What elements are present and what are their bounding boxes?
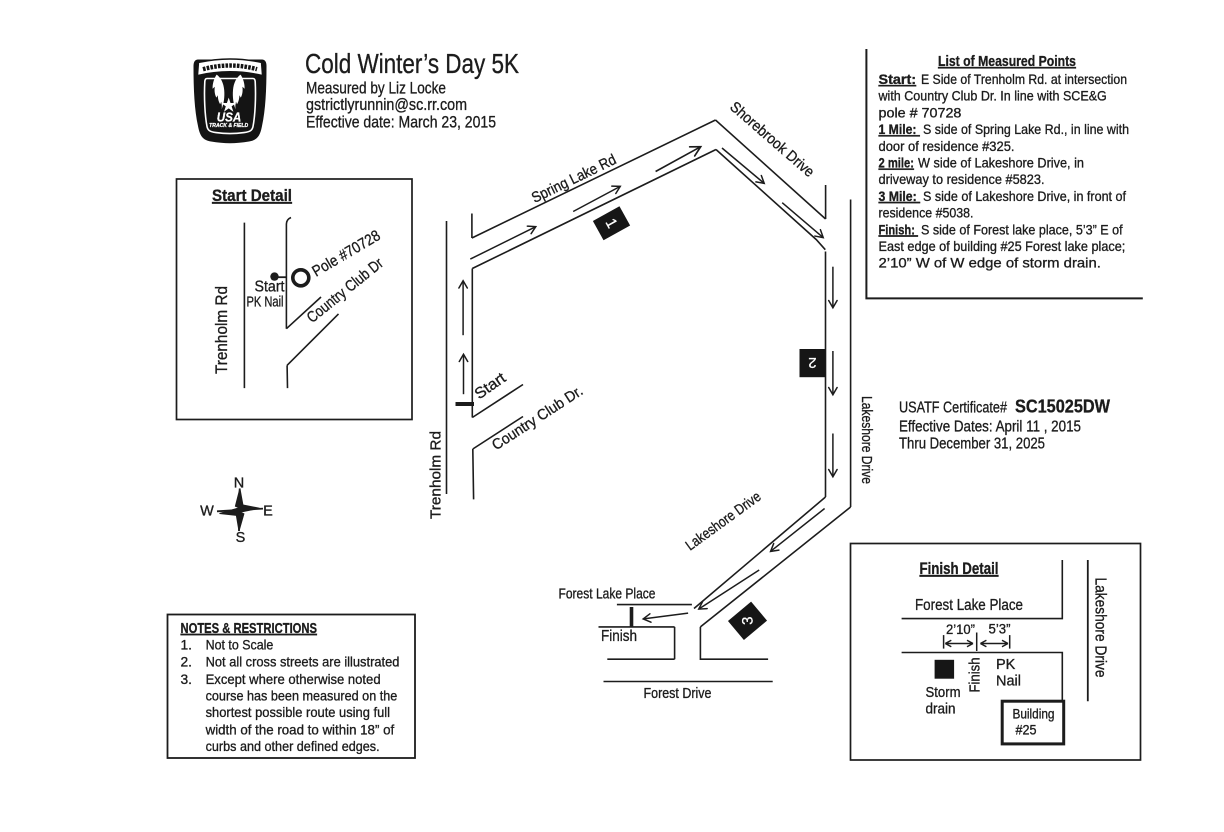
svg-text:W side of Lakeshore Drive, in: W side of Lakeshore Drive, in [918,156,1084,171]
svg-text:1.: 1. [181,638,193,653]
svg-text:S side of Lakeshore Drive, in: S side of Lakeshore Drive, in front of [923,189,1126,204]
svg-text:door of residence #325.: door of residence #325. [879,139,1015,154]
svg-text:5’3”: 5’3” [989,622,1011,637]
svg-text:S: S [236,530,246,546]
svg-text:1 Mile:: 1 Mile: [879,122,920,137]
svg-text:shortest possible route using: shortest possible route using full [206,705,390,720]
svg-text:2’10” W of W edge of storm dra: 2’10” W of W edge of storm drain. [879,256,1101,271]
svg-text:driveway to residence #5823.: driveway to residence #5823. [879,172,1045,187]
svg-text:N: N [234,476,244,492]
svg-text:3: 3 [739,616,756,625]
svg-text:course has been measured on th: course has been measured on the [206,689,398,704]
svg-text:Cold Winter’s Day 5K: Cold Winter’s Day 5K [305,48,520,79]
svg-text:Thru December 31, 2025: Thru December 31, 2025 [899,436,1045,453]
svg-text:Effective Dates: April 11 , 20: Effective Dates: April 11 , 2015 [899,419,1081,436]
svg-text:Forest Lake Place: Forest Lake Place [559,587,656,603]
svg-text:Forest Drive: Forest Drive [644,686,712,702]
svg-text:3 Mile:: 3 Mile: [879,189,921,204]
svg-text:width of the road to within 18: width of the road to within 18” of [205,723,395,738]
svg-text:Finish Detail: Finish Detail [920,560,999,578]
svg-text:Trenholm Rd: Trenholm Rd [213,286,231,374]
svg-text:Not to Scale: Not to Scale [206,638,274,653]
svg-text:2.: 2. [181,655,193,670]
svg-text:TRACK & FIELD: TRACK & FIELD [209,123,248,129]
svg-text:residence #5038.: residence #5038. [879,206,974,221]
svg-text:Finish: Finish [968,658,984,693]
svg-text:3.: 3. [181,672,193,687]
svg-text:Effective date: March 23, 2015: Effective date: March 23, 2015 [306,113,496,132]
svg-text:USATF Certificate#: USATF Certificate# [899,400,1007,417]
svg-text:pole # 70728: pole # 70728 [879,105,962,120]
svg-text:Except where otherwise noted: Except where otherwise noted [206,672,381,687]
svg-text:PK: PK [996,657,1016,673]
svg-text:Lakeshore Drive: Lakeshore Drive [858,396,875,484]
svg-text:S side of Forest lake place, 5: S side of Forest lake place, 5’3” E of [921,222,1123,237]
svg-text:PK Nail: PK Nail [247,295,284,311]
svg-text:List of Measured Points: List of Measured Points [938,54,1076,70]
svg-text:E: E [263,504,273,520]
svg-text:S side of Spring Lake Rd., in: S side of Spring Lake Rd., in line with [923,122,1129,137]
svg-text:2’10”: 2’10” [946,622,975,637]
svg-text:East edge of building #25 Fore: East edge of building #25 Forest lake pl… [879,239,1126,254]
svg-text:E Side of Trenholm Rd. at inte: E Side of Trenholm Rd. at intersection [921,72,1127,87]
svg-text:Forest Lake Place: Forest Lake Place [915,597,1023,614]
svg-text:Storm: Storm [926,685,961,701]
svg-text:Nail: Nail [996,674,1021,690]
svg-text:2: 2 [808,354,816,371]
svg-text:Trenholm Rd: Trenholm Rd [428,431,445,519]
svg-text:Start: Start [255,279,286,296]
svg-text:Finish: Finish [601,628,637,645]
svg-text:#25: #25 [1016,723,1037,738]
svg-text:Lakeshore Drive: Lakeshore Drive [1092,578,1109,678]
svg-text:Start:: Start: [879,72,917,87]
svg-text:SC15025DW: SC15025DW [1015,396,1110,417]
svg-text:curbs and other defined edges.: curbs and other defined edges. [206,739,380,754]
svg-text:drain: drain [926,702,956,718]
svg-text:Not all cross streets are illu: Not all cross streets are illustrated [206,655,400,670]
svg-text:W: W [200,504,214,520]
svg-text:NOTES & RESTRICTIONS: NOTES & RESTRICTIONS [181,621,318,637]
svg-text:with Country Club Dr. In line: with Country Club Dr. In line with SCE&G [878,89,1107,104]
svg-text:Finish:: Finish: [879,222,919,237]
svg-text:2 mile:: 2 mile: [879,156,915,171]
svg-text:gstrictlyrunnin@sc.rr.com: gstrictlyrunnin@sc.rr.com [306,95,467,114]
svg-text:Start Detail: Start Detail [212,187,292,205]
svg-text:Building: Building [1013,707,1055,722]
